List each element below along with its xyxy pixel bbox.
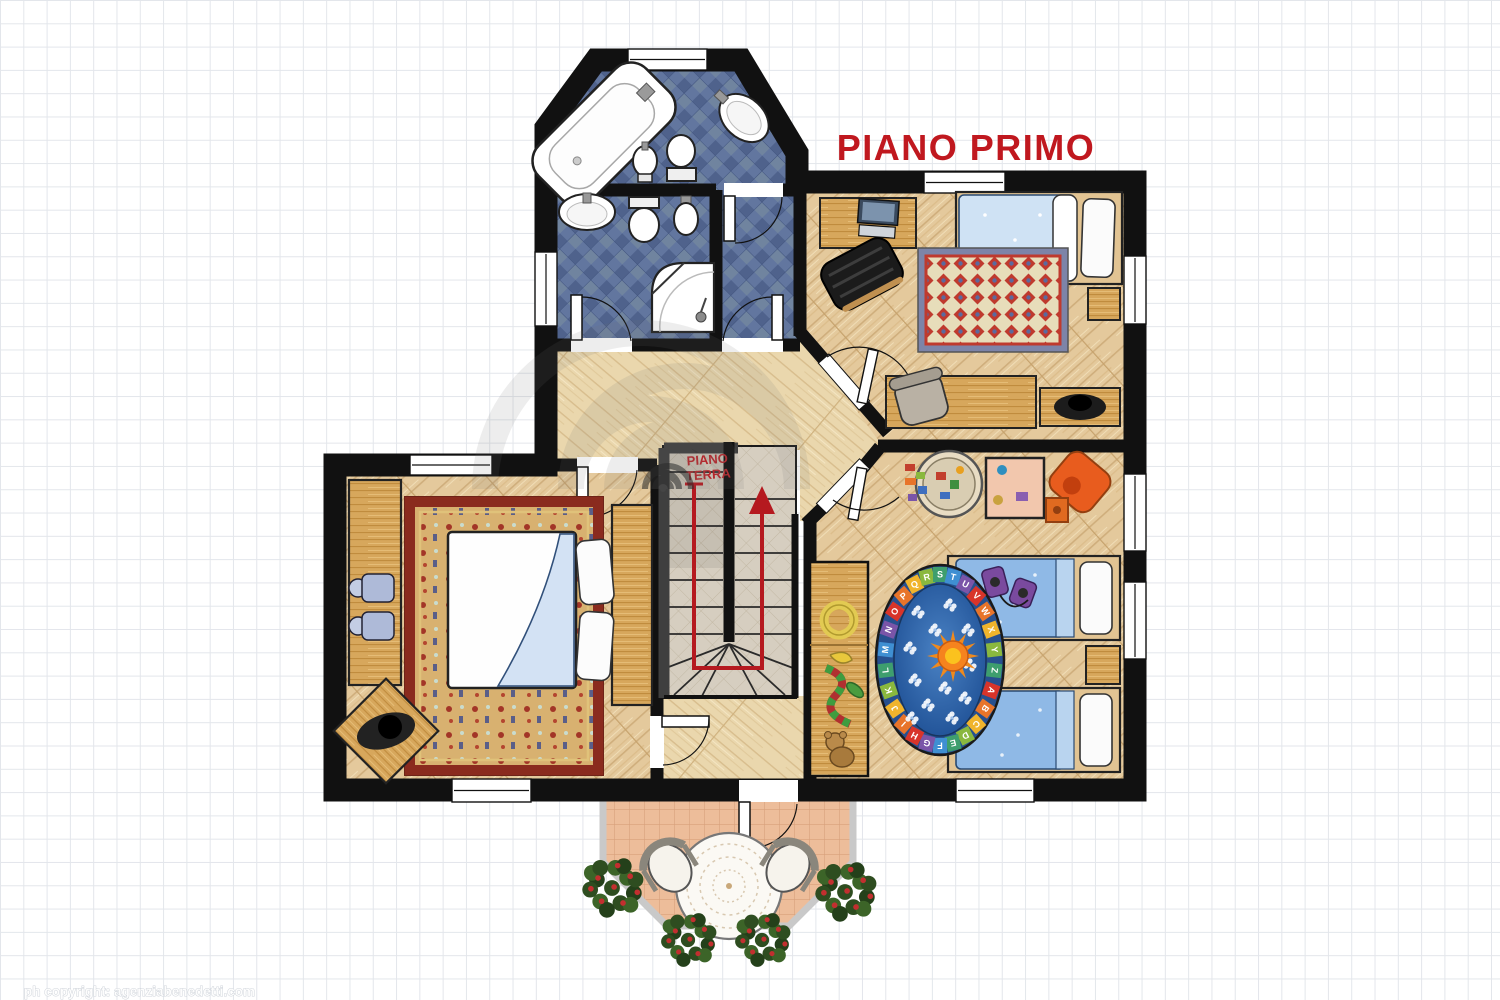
petal bbox=[914, 681, 919, 686]
bush-flower bbox=[588, 886, 594, 892]
toilet-upper bbox=[667, 135, 696, 181]
floor-plan-canvas: ABCDEFGHIJKLMNOPQRSTUVWXYZ bbox=[0, 0, 1500, 1000]
flower-center bbox=[910, 716, 913, 719]
kids-right-window-1 bbox=[1124, 474, 1146, 551]
bedroom-top-window bbox=[924, 172, 1005, 193]
flower-center bbox=[966, 628, 969, 631]
bush-flower bbox=[634, 889, 640, 895]
play-mat bbox=[986, 458, 1044, 518]
petal bbox=[909, 649, 914, 654]
bush-flower bbox=[691, 917, 696, 922]
kids-right-window-2 bbox=[1124, 582, 1146, 659]
flower-center bbox=[916, 610, 919, 613]
bush-flower bbox=[695, 951, 700, 956]
kids-shelf bbox=[810, 562, 868, 776]
bush-leaf bbox=[750, 953, 764, 967]
bush-leaf bbox=[744, 915, 758, 929]
bush-flower bbox=[782, 941, 787, 946]
bush-flower bbox=[761, 936, 766, 941]
alphabet-rug: ABCDEFGHIJKLMNOPQRSTUVWXYZ bbox=[876, 565, 1004, 755]
petal bbox=[917, 613, 922, 618]
bush-flower bbox=[740, 938, 745, 943]
bush-flower bbox=[844, 888, 850, 894]
bush-flower bbox=[867, 893, 873, 899]
bush-flower bbox=[627, 873, 633, 879]
bush-leaf bbox=[599, 902, 615, 918]
bush-flower bbox=[821, 890, 827, 896]
petal bbox=[949, 606, 954, 611]
rug-letter: F bbox=[937, 741, 943, 751]
toilet-lower bbox=[629, 197, 659, 242]
bush-flower bbox=[708, 941, 713, 946]
master-bottom-window bbox=[452, 779, 531, 802]
bathroom-window bbox=[535, 252, 557, 326]
petal bbox=[927, 706, 932, 711]
sun-center bbox=[945, 648, 961, 664]
rug-letter: S bbox=[937, 570, 943, 580]
bush-flower bbox=[848, 867, 854, 873]
bush-flower bbox=[599, 898, 605, 904]
bush-leaf bbox=[592, 860, 608, 876]
bedroom-side-table bbox=[1040, 388, 1120, 426]
bush-leaf bbox=[825, 864, 841, 880]
bush-flower bbox=[860, 877, 866, 883]
master-headboard bbox=[612, 505, 652, 705]
master-bed bbox=[448, 505, 652, 705]
bush-flower bbox=[702, 927, 707, 932]
sink-lower bbox=[559, 193, 615, 230]
copyright-watermark: ph copyright: agenziabenedetti.com bbox=[24, 984, 255, 999]
bush-flower bbox=[750, 949, 755, 954]
bedroom-nightstand bbox=[1088, 288, 1120, 320]
petal bbox=[911, 719, 916, 724]
rug-letter: M bbox=[880, 645, 891, 654]
bush-flower bbox=[666, 938, 671, 943]
bush-flower bbox=[676, 949, 681, 954]
bush-flower bbox=[687, 936, 692, 941]
bush-flower bbox=[611, 884, 617, 890]
kids-nightstand bbox=[1086, 646, 1120, 684]
toy-basket bbox=[916, 451, 982, 517]
bush-flower bbox=[776, 927, 781, 932]
petal bbox=[964, 699, 969, 704]
petal bbox=[944, 689, 949, 694]
bedroom-rug bbox=[918, 248, 1068, 352]
flower-center bbox=[963, 696, 966, 699]
lower-hallway-floor bbox=[657, 696, 810, 790]
bush-leaf bbox=[676, 953, 690, 967]
bush-flower bbox=[828, 879, 834, 885]
bush-flower bbox=[747, 928, 752, 933]
kids-cube-dot bbox=[1053, 506, 1061, 514]
petal bbox=[967, 631, 972, 636]
bedroom-right-window bbox=[1124, 256, 1146, 324]
flower-center bbox=[950, 716, 953, 719]
bush-flower bbox=[832, 902, 838, 908]
flower-center bbox=[943, 686, 946, 689]
bush-leaf bbox=[670, 915, 684, 929]
bush-leaf bbox=[832, 906, 848, 922]
bush-flower bbox=[620, 900, 626, 906]
petal bbox=[951, 719, 956, 724]
flower-center bbox=[933, 628, 936, 631]
bush-flower bbox=[673, 928, 678, 933]
floor-plan-page: { "header": { "title": "PIANO PRIMO", "t… bbox=[0, 0, 1500, 1000]
bush-flower bbox=[765, 917, 770, 922]
flower-center bbox=[908, 646, 911, 649]
flower-center bbox=[948, 603, 951, 606]
flower-center bbox=[926, 703, 929, 706]
bush-flower bbox=[769, 951, 774, 956]
flower-bush bbox=[815, 862, 876, 921]
kids-bottom-window bbox=[956, 779, 1034, 802]
bush-flower bbox=[595, 875, 601, 881]
petal bbox=[934, 631, 939, 636]
rug-letter: Y bbox=[989, 646, 1000, 653]
bush-flower bbox=[615, 863, 621, 869]
bush-flower bbox=[853, 904, 859, 910]
flower-center bbox=[913, 678, 916, 681]
laptop bbox=[857, 199, 899, 239]
page-title: PIANO PRIMO bbox=[837, 127, 1096, 168]
